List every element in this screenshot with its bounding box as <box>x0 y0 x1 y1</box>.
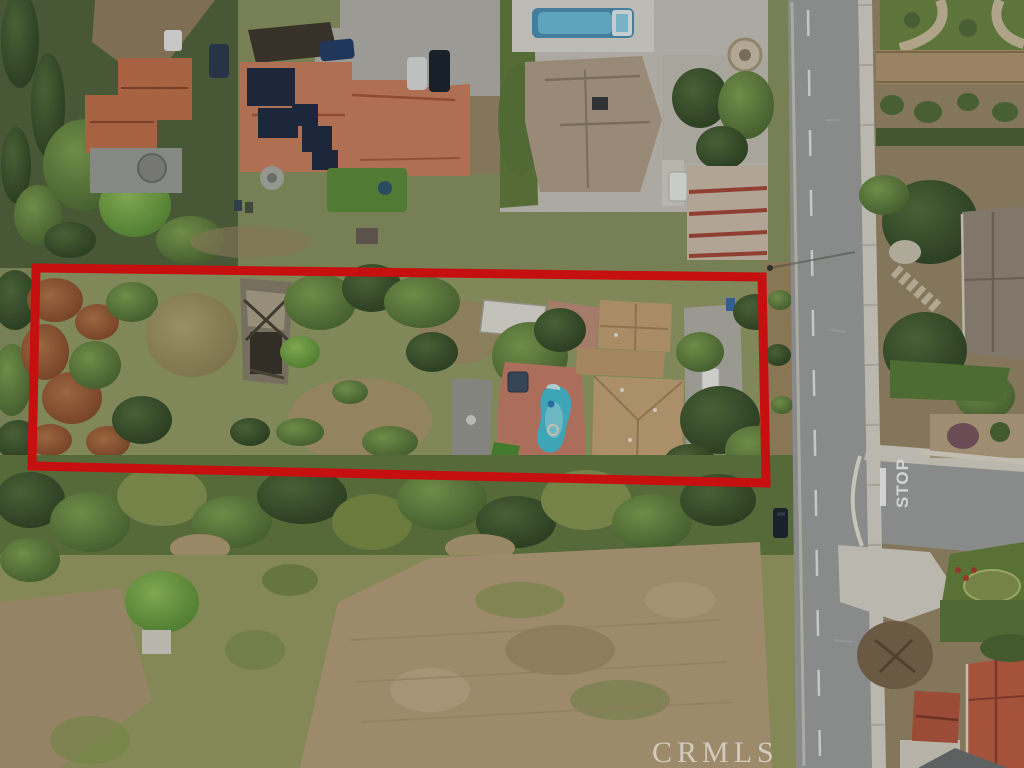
photo-grain-overlay <box>0 0 1024 768</box>
aerial-scene: STOP <box>0 0 1024 768</box>
mls-watermark: CRMLS <box>652 736 779 768</box>
aerial-photo: STOP <box>0 0 1024 768</box>
